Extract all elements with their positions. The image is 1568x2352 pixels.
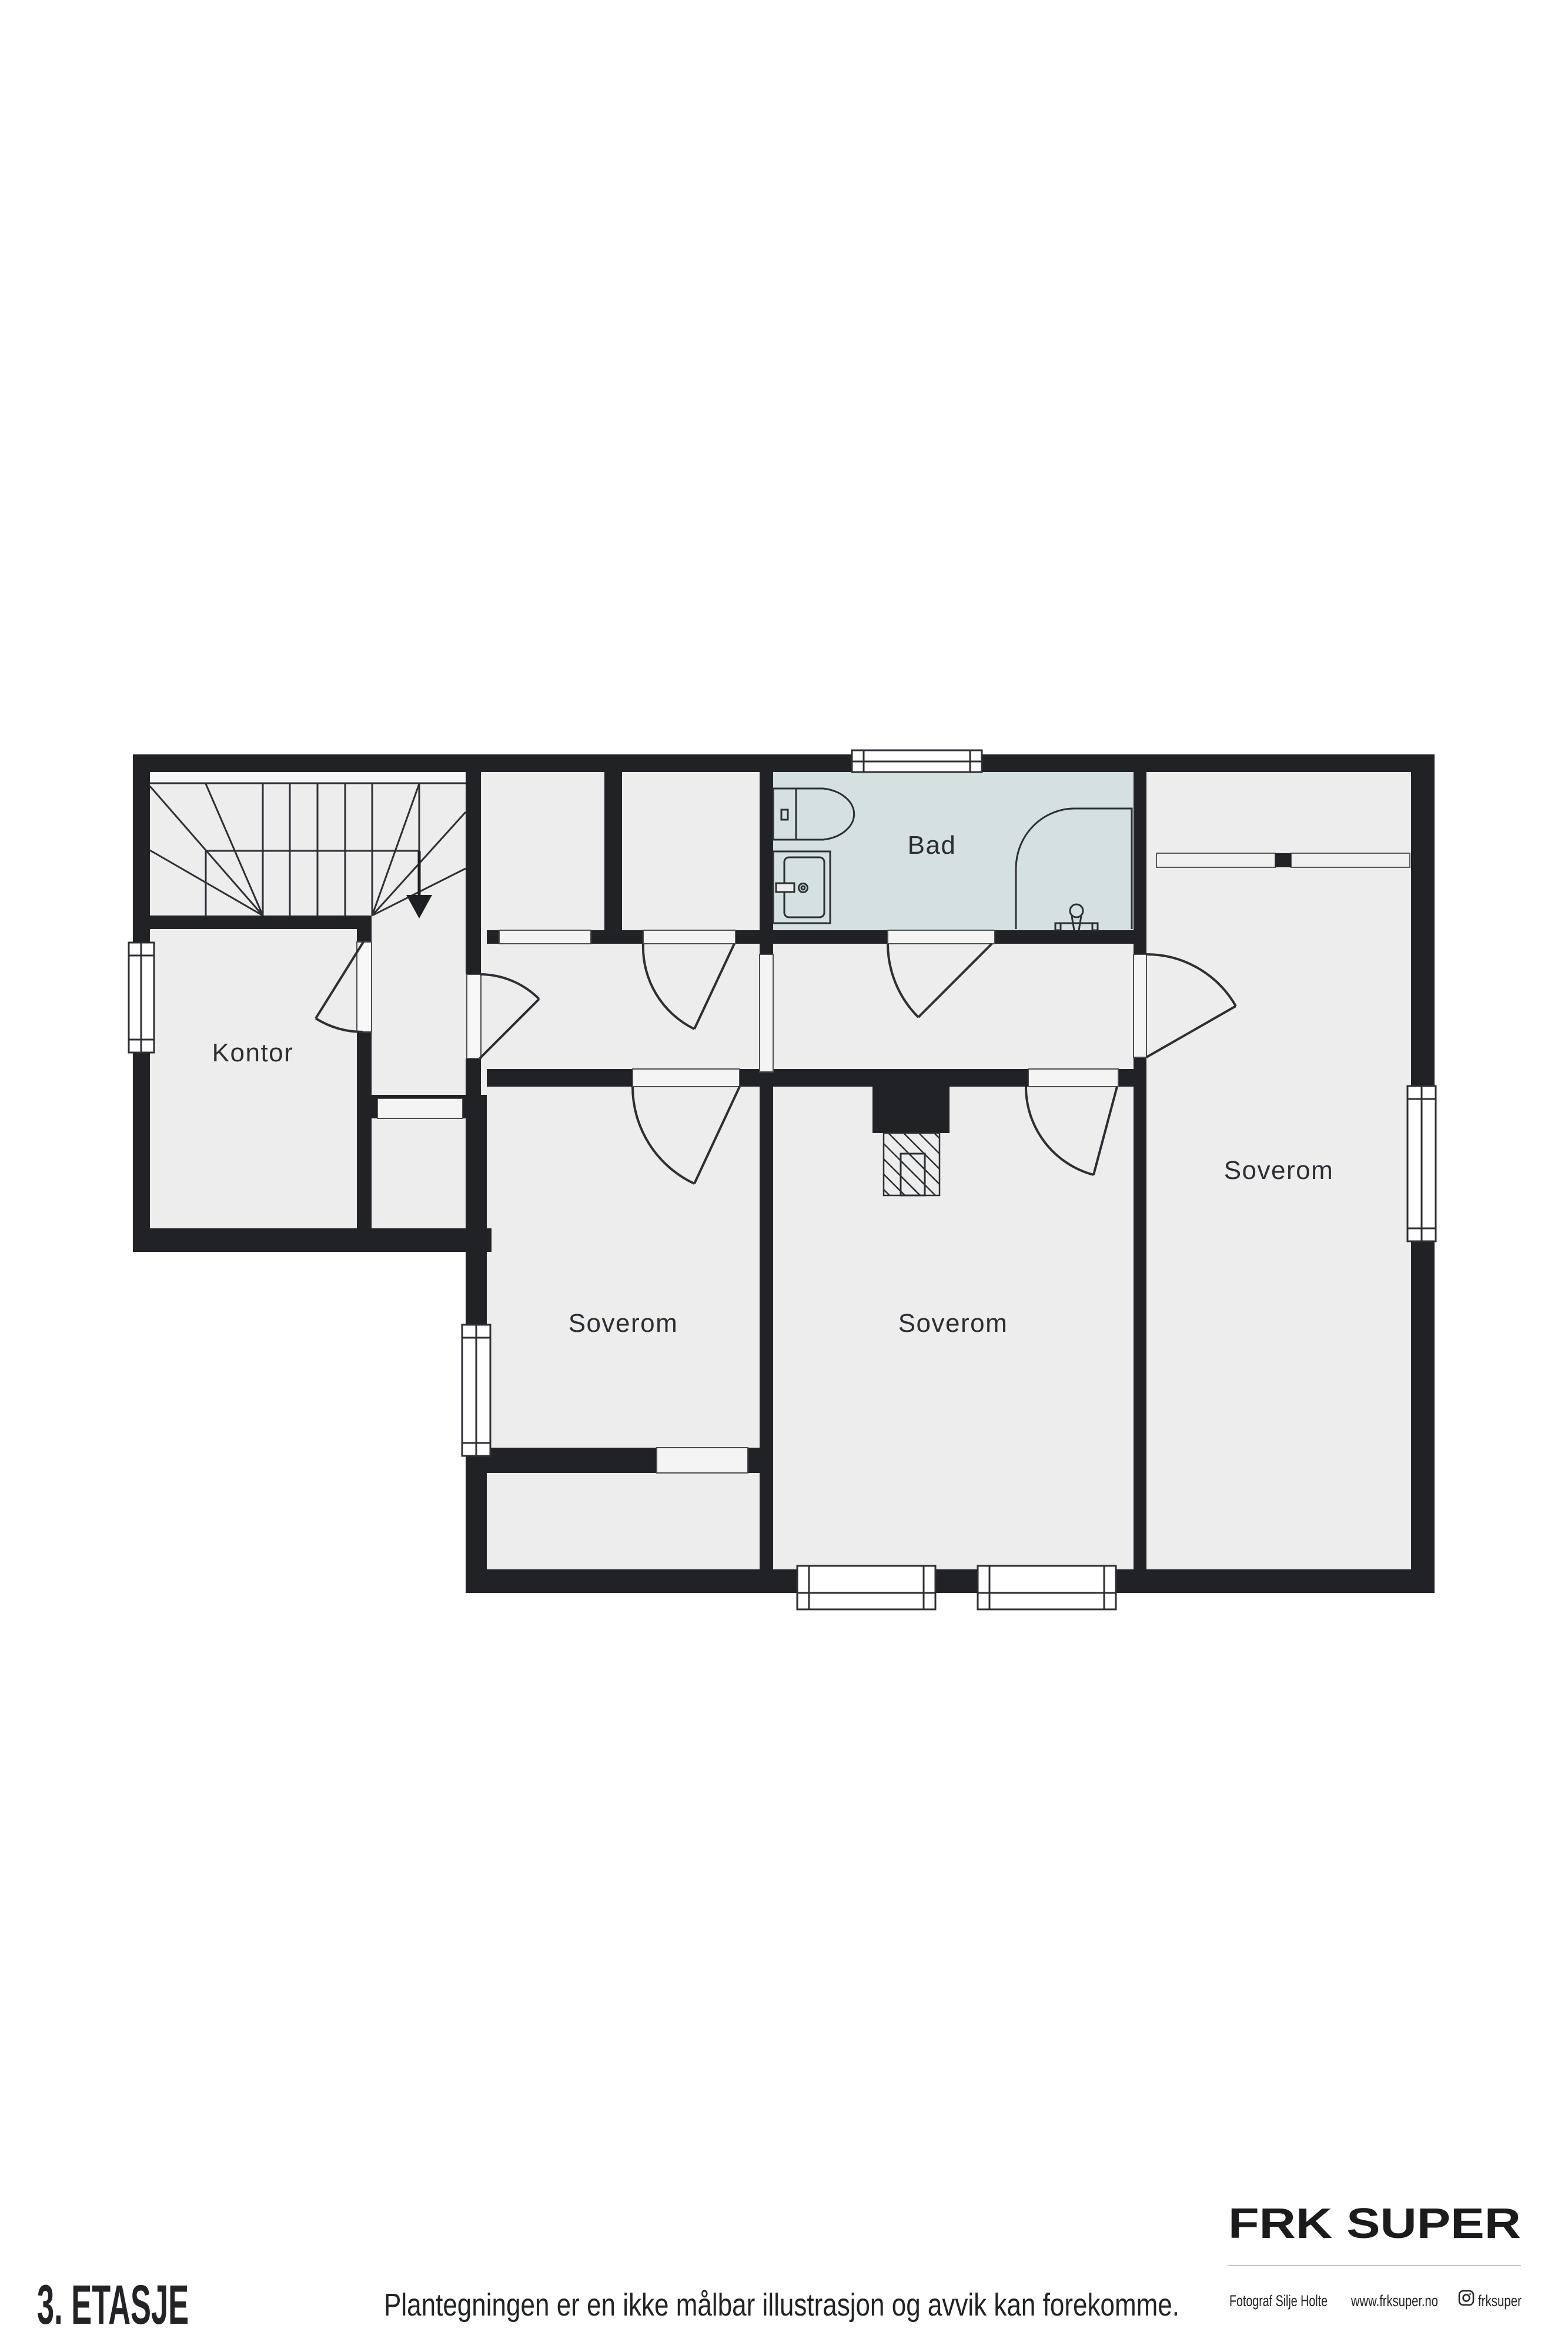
chimney-hatch xyxy=(884,1133,940,1195)
window-midbedroom-left xyxy=(797,1566,935,1609)
threshold-leftbedroom-door xyxy=(633,1069,740,1087)
brand-instagram: frksuper xyxy=(1478,2292,1522,2310)
wardrobe-rightbedroom xyxy=(1156,853,1410,867)
footer: 3. ETASJE Plantegningen er en ikke målba… xyxy=(37,2200,1522,2336)
wall-bottom xyxy=(466,1569,1435,1593)
window-leftbedroom xyxy=(462,1325,490,1456)
floor-plan-page: Kontor Bad Soverom Soverom Soverom 3. ET… xyxy=(0,0,1568,2352)
brand-logo: FRK SUPER xyxy=(1228,2200,1521,2247)
window-rightbedroom xyxy=(1407,1086,1436,1241)
brand-website: www.frksuper.no xyxy=(1350,2292,1438,2310)
chimney-block xyxy=(872,1069,950,1133)
door-leaf-office xyxy=(357,942,372,1032)
wall-bedroom-divider xyxy=(760,1072,773,1569)
wall-stairs-bottom xyxy=(133,916,372,929)
brand-photographer: Fotograf Silje Holte xyxy=(1229,2292,1328,2310)
disclaimer-text: Plantegningen er en ikke målbar illustra… xyxy=(384,2287,1179,2323)
threshold-hall-passage xyxy=(760,954,773,1072)
window-office-left xyxy=(129,943,154,1053)
stairs-landing-band xyxy=(150,772,466,783)
threshold-leftbedroom-bottom xyxy=(657,1448,748,1473)
wall-left-section-bottom xyxy=(133,1228,492,1252)
floor-plan: Kontor Bad Soverom Soverom Soverom xyxy=(129,750,1436,1609)
instagram-icon xyxy=(1459,2291,1473,2305)
threshold-rightbedroom-door xyxy=(1134,954,1146,1057)
wall-top xyxy=(133,754,1435,772)
threshold-closet-b xyxy=(643,930,735,944)
room-label-office: Kontor xyxy=(212,1038,294,1067)
window-midbedroom-right xyxy=(978,1566,1116,1609)
door-leaf-vestibule xyxy=(467,974,481,1058)
threshold-bath-door xyxy=(888,930,995,944)
window-bath-top xyxy=(852,750,982,772)
threshold-closet-a xyxy=(499,930,591,944)
room-label-bedroom-middle: Soverom xyxy=(898,1309,1008,1338)
wall-closet-divider xyxy=(604,754,622,930)
floor-title: 3. ETASJE xyxy=(37,2274,189,2336)
wall-office-right xyxy=(357,1032,372,1228)
threshold-midbedroom-door xyxy=(1028,1069,1118,1087)
room-label-bedroom-left: Soverom xyxy=(569,1309,678,1338)
brand-block: FRK SUPER Fotograf Silje Holte www.frksu… xyxy=(1228,2200,1522,2310)
room-label-bedroom-right: Soverom xyxy=(1224,1156,1334,1185)
threshold-vestibule-closet xyxy=(377,1098,463,1118)
wall-rightbedroom-left xyxy=(1134,1057,1146,1569)
room-label-bath: Bad xyxy=(908,831,957,860)
